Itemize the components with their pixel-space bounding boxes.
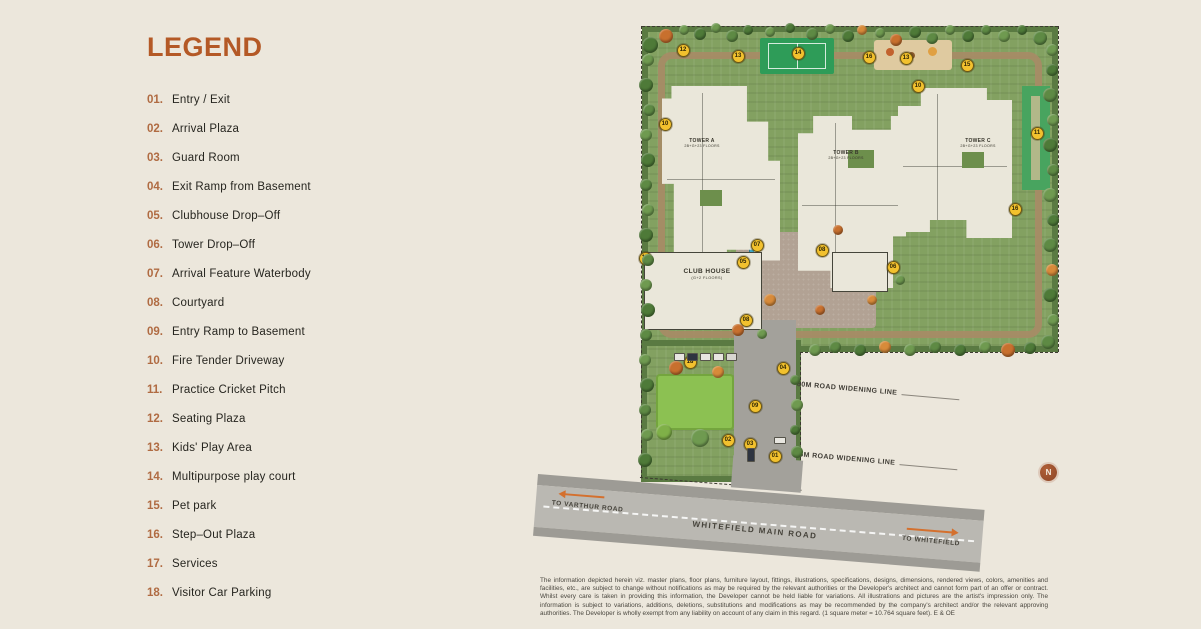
legend-item-label: Multipurpose play court <box>172 471 296 483</box>
tree-icon <box>638 453 652 467</box>
boundary-line <box>642 26 1058 27</box>
legend-item-number: 11. <box>147 384 166 396</box>
legend-item-number: 04. <box>147 181 166 193</box>
legend-item: 15. Pet park <box>147 491 477 520</box>
legend-item-number: 14. <box>147 471 166 483</box>
tree-icon <box>640 329 652 341</box>
tree-icon <box>732 324 744 336</box>
legend-item-label: Entry / Exit <box>172 94 230 106</box>
legend-item-number: 02. <box>147 123 166 135</box>
tree-icon <box>1047 164 1059 176</box>
tree-icon <box>926 32 938 44</box>
tree-icon <box>757 329 767 339</box>
tree-icon <box>743 25 753 35</box>
plan-marker: 12 <box>677 44 690 57</box>
legend-item: 14. Multipurpose play court <box>147 462 477 491</box>
legend-item: 03. Guard Room <box>147 143 477 172</box>
tree-icon <box>1001 343 1015 357</box>
plan-marker: 13 <box>732 50 745 63</box>
plan-marker: 11 <box>1031 127 1044 140</box>
legend-item: 02. Arrival Plaza <box>147 114 477 143</box>
legend-item-label: Fire Tender Driveway <box>172 355 284 367</box>
legend-item: 06. Tower Drop–Off <box>147 230 477 259</box>
legend-item: 18. Visitor Car Parking <box>147 578 477 607</box>
legend-item-number: 10. <box>147 355 166 367</box>
tree-icon <box>1047 114 1059 126</box>
tree-icon <box>842 30 854 42</box>
tree-icon <box>669 361 683 375</box>
legend-item-label: Clubhouse Drop–Off <box>172 210 280 222</box>
disclaimer-text: The information depicted herein viz. mas… <box>540 577 1048 618</box>
legend-item-number: 15. <box>147 500 166 512</box>
tree-icon <box>998 30 1010 42</box>
tree-icon <box>895 275 905 285</box>
legend-list: 01. Entry / Exit02. Arrival Plaza03. Gua… <box>147 85 477 607</box>
legend-item: 12. Seating Plaza <box>147 404 477 433</box>
tree-icon <box>867 295 877 305</box>
tree-icon <box>639 78 653 92</box>
tree-icon <box>1017 25 1027 35</box>
tree-icon <box>1043 238 1057 252</box>
plan-marker: 15 <box>961 59 974 72</box>
boundary-line <box>1058 26 1059 352</box>
tree-icon <box>642 254 654 266</box>
tree-icon <box>711 23 721 33</box>
tower-c-label: TOWER C2B+G+23 FLOORS <box>948 138 1008 149</box>
tree-icon <box>790 425 800 435</box>
tree-icon <box>1043 88 1057 102</box>
car-icon <box>713 353 724 361</box>
plan-marker: 05 <box>737 256 750 269</box>
legend-item-label: Pet park <box>172 500 216 512</box>
legend-item-number: 05. <box>147 210 166 222</box>
legend-item: 16. Step–Out Plaza <box>147 520 477 549</box>
widening-line <box>901 394 959 400</box>
tree-icon <box>890 34 902 46</box>
tree-icon <box>691 429 709 447</box>
plan-marker: 09 <box>749 400 762 413</box>
plan-marker: 10 <box>659 118 672 131</box>
tree-icon <box>825 24 835 34</box>
road-widening-45m-label: 45M ROAD WIDENING LINE <box>795 451 958 472</box>
tree-icon <box>641 153 655 167</box>
legend-item-number: 07. <box>147 268 166 280</box>
pet-park-lawn <box>656 374 734 430</box>
tree-icon <box>712 366 724 378</box>
plan-marker: 16 <box>863 51 876 64</box>
tree-icon <box>790 375 800 385</box>
legend-item-number: 16. <box>147 529 166 541</box>
tree-icon <box>1024 342 1036 354</box>
legend-item-label: Arrival Plaza <box>172 123 239 135</box>
car-icon <box>774 437 786 444</box>
legend-item-number: 17. <box>147 558 166 570</box>
legend-item-label: Entry Ramp to Basement <box>172 326 305 338</box>
legend-item-number: 03. <box>147 152 166 164</box>
tree-icon <box>1047 314 1059 326</box>
legend-item: 07. Arrival Feature Waterbody <box>147 259 477 288</box>
tree-icon <box>726 30 738 42</box>
tree-icon <box>640 179 652 191</box>
north-compass-icon: N <box>1040 464 1057 481</box>
tower-drop-off-canopy <box>832 252 888 292</box>
legend-item-label: Kids' Play Area <box>172 442 252 454</box>
tree-icon <box>854 344 866 356</box>
tree-icon <box>791 446 803 458</box>
tree-icon <box>640 279 652 291</box>
legend-item-number: 13. <box>147 442 166 454</box>
play-equipment <box>886 48 894 56</box>
legend-item-number: 18. <box>147 587 166 599</box>
legend-item-label: Exit Ramp from Basement <box>172 181 311 193</box>
legend-item-number: 12. <box>147 413 166 425</box>
tree-icon <box>764 294 776 306</box>
tower-a-label: TOWER A2B+G+23 FLOORS <box>672 138 732 149</box>
tree-icon <box>679 25 689 35</box>
tree-icon <box>909 26 921 38</box>
plan-marker: 07 <box>751 239 764 252</box>
tree-icon <box>643 104 655 116</box>
legend-item: 05. Clubhouse Drop–Off <box>147 201 477 230</box>
tree-icon <box>1043 288 1057 302</box>
tree-icon <box>641 429 653 441</box>
tree-icon <box>1047 214 1059 226</box>
tree-icon <box>829 341 841 353</box>
tree-icon <box>945 25 955 35</box>
tree-icon <box>806 28 818 40</box>
tree-icon <box>640 129 652 141</box>
tower-c-building <box>898 88 1012 238</box>
kids-play-area <box>874 40 952 70</box>
tree-icon <box>857 25 867 35</box>
widening-line <box>899 464 957 470</box>
tree-icon <box>875 28 885 38</box>
legend-item: 01. Entry / Exit <box>147 85 477 114</box>
plan-marker: 01 <box>769 450 782 463</box>
tree-icon <box>833 225 843 235</box>
legend-title: LEGEND <box>147 32 263 63</box>
legend-item: 13. Kids' Play Area <box>147 433 477 462</box>
page-background: LEGEND 01. Entry / Exit02. Arrival Plaza… <box>0 0 1201 629</box>
tree-icon <box>929 341 941 353</box>
clubhouse-label: CLUB HOUSE(G+2 FLOORS) <box>672 268 742 280</box>
legend-item-label: Guard Room <box>172 152 240 164</box>
plan-marker: 08 <box>816 244 829 257</box>
entry-apron <box>731 455 803 492</box>
roof-garden <box>700 190 722 206</box>
tree-icon <box>1043 188 1057 202</box>
legend-item-label: Visitor Car Parking <box>172 587 271 599</box>
plan-marker: 04 <box>777 362 790 375</box>
tree-icon <box>879 341 891 353</box>
tree-icon <box>639 228 653 242</box>
tree-icon <box>694 28 706 40</box>
tree-icon <box>1046 264 1058 276</box>
tree-icon <box>1046 64 1058 76</box>
car-icon <box>687 353 698 361</box>
tree-icon <box>1046 44 1058 56</box>
tree-icon <box>954 344 966 356</box>
legend-item-label: Courtyard <box>172 297 224 309</box>
plan-marker: 02 <box>722 434 735 447</box>
driveway-leg <box>734 320 796 470</box>
tree-icon <box>641 303 655 317</box>
road-widening-80m-label: 80M ROAD WIDENING LINE <box>797 381 960 402</box>
legend-item-number: 09. <box>147 326 166 338</box>
tree-icon <box>656 424 672 440</box>
tree-icon <box>815 305 825 315</box>
tree-icon <box>962 30 974 42</box>
car-icon <box>726 353 737 361</box>
plan-marker: 14 <box>792 47 805 60</box>
legend-item: 04. Exit Ramp from Basement <box>147 172 477 201</box>
car-icon <box>700 353 711 361</box>
tree-icon <box>809 344 821 356</box>
tree-icon <box>1043 138 1057 152</box>
boundary-line <box>800 352 1058 353</box>
legend-item: 17. Services <box>147 549 477 578</box>
legend-item: 10. Fire Tender Driveway <box>147 346 477 375</box>
legend-item-number: 01. <box>147 94 166 106</box>
tree-icon <box>659 29 673 43</box>
tree-icon <box>1041 335 1055 349</box>
legend-item-label: Tower Drop–Off <box>172 239 255 251</box>
legend-item-number: 08. <box>147 297 166 309</box>
legend-item-label: Seating Plaza <box>172 413 246 425</box>
legend-item-label: Services <box>172 558 218 570</box>
tree-icon <box>639 404 651 416</box>
legend-item: 08. Courtyard <box>147 288 477 317</box>
tree-icon <box>765 27 775 37</box>
plan-marker: 13 <box>900 52 913 65</box>
tree-icon <box>640 378 654 392</box>
legend-item-label: Step–Out Plaza <box>172 529 255 541</box>
tree-icon <box>1033 31 1047 45</box>
legend-item-number: 06. <box>147 239 166 251</box>
tree-icon <box>642 54 654 66</box>
tree-icon <box>791 399 803 411</box>
tower-b-label: TOWER B2B+G+23 FLOORS <box>816 150 876 161</box>
legend-item: 09. Entry Ramp to Basement <box>147 317 477 346</box>
plan-marker: 16 <box>1009 203 1022 216</box>
legend-item-label: Practice Cricket Pitch <box>172 384 286 396</box>
tree-icon <box>904 344 916 356</box>
tree-icon <box>979 341 991 353</box>
plan-marker: 06 <box>887 261 900 274</box>
roof-garden <box>962 152 984 168</box>
tree-icon <box>785 23 795 33</box>
play-equipment <box>928 47 937 56</box>
legend-item-label: Arrival Feature Waterbody <box>172 268 311 280</box>
tree-icon <box>639 354 651 366</box>
legend-item: 11. Practice Cricket Pitch <box>147 375 477 404</box>
tree-icon <box>642 204 654 216</box>
tree-icon <box>642 37 658 53</box>
car-icon <box>747 448 755 462</box>
tree-icon <box>981 25 991 35</box>
plan-marker: 10 <box>912 80 925 93</box>
car-icon <box>674 353 685 361</box>
